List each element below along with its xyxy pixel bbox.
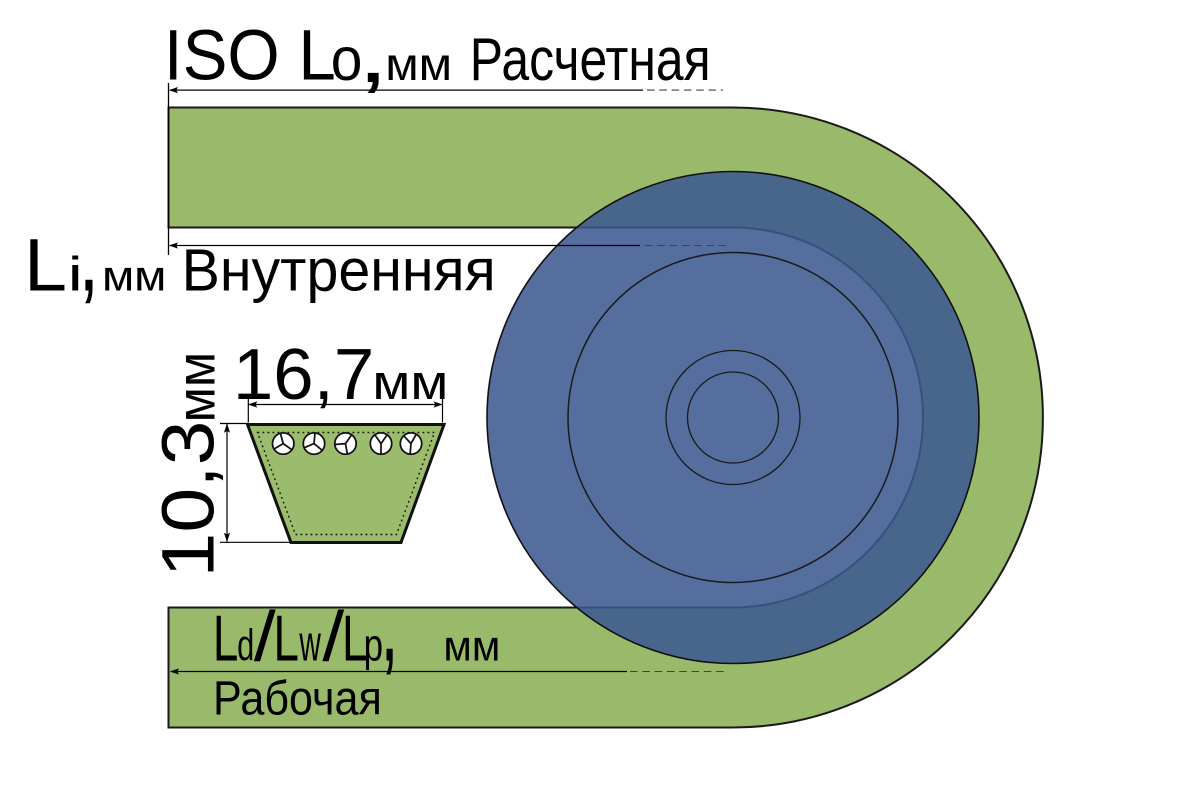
svg-text:мм: мм bbox=[102, 251, 166, 300]
svg-text:мм: мм bbox=[372, 356, 448, 411]
svg-text:мм: мм bbox=[443, 622, 500, 670]
svg-text:,: , bbox=[357, 6, 389, 101]
svg-text:ISO L: ISO L bbox=[164, 15, 336, 95]
svg-text:10,3: 10,3 bbox=[147, 421, 229, 578]
svg-text:d: d bbox=[237, 621, 254, 671]
svg-text:Расчетная: Расчетная bbox=[470, 25, 711, 92]
svg-text:/: / bbox=[322, 596, 344, 676]
svg-text:/: / bbox=[254, 596, 276, 676]
svg-text:,: , bbox=[79, 200, 100, 312]
svg-text:L: L bbox=[24, 224, 67, 307]
svg-text:16,7: 16,7 bbox=[233, 334, 374, 415]
svg-text:Рабочая: Рабочая bbox=[213, 671, 382, 725]
svg-text:,: , bbox=[381, 563, 399, 685]
svg-text:L: L bbox=[213, 602, 238, 675]
svg-text:мм: мм bbox=[166, 352, 226, 423]
svg-text:Внутренняя: Внутренняя bbox=[182, 237, 496, 303]
svg-text:L: L bbox=[274, 602, 299, 675]
svg-text:мм: мм bbox=[385, 39, 452, 91]
svg-text:w: w bbox=[299, 614, 322, 671]
